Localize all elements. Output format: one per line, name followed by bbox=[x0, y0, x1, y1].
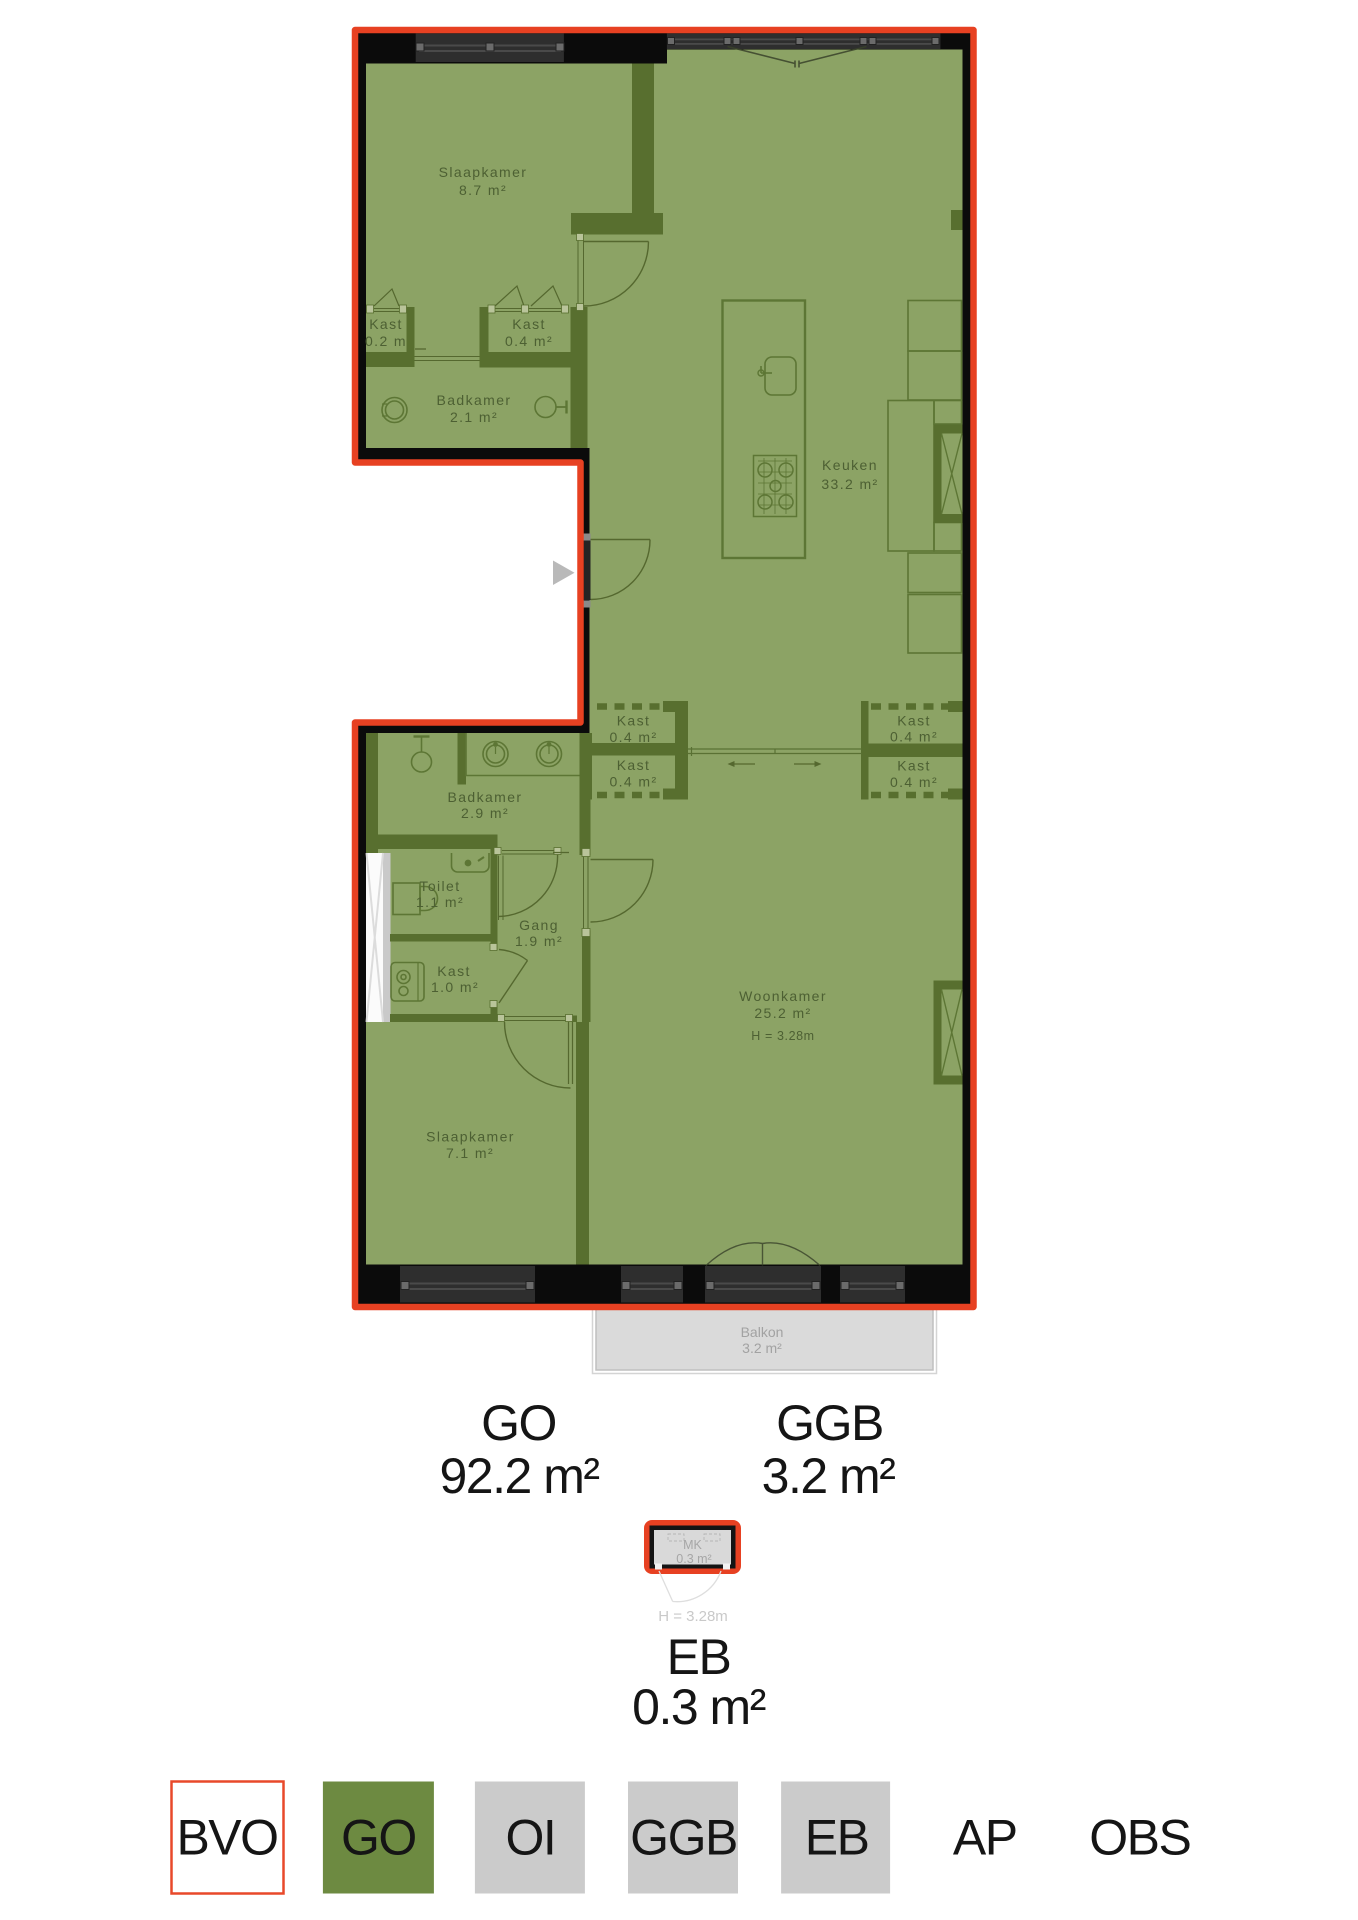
svg-text:H = 3.28m: H = 3.28m bbox=[658, 1608, 728, 1625]
svg-text:7.1 m²: 7.1 m² bbox=[446, 1145, 494, 1161]
svg-text:OI: OI bbox=[506, 1810, 556, 1866]
svg-text:Badkamer: Badkamer bbox=[436, 392, 511, 408]
svg-text:Woonkamer: Woonkamer bbox=[739, 988, 827, 1004]
svg-text:25.2 m²: 25.2 m² bbox=[754, 1005, 811, 1021]
svg-text:8.7 m²: 8.7 m² bbox=[459, 182, 507, 198]
svg-text:Kast: Kast bbox=[617, 713, 651, 729]
svg-text:Slaapkamer: Slaapkamer bbox=[439, 164, 528, 180]
svg-text:1.9 m²: 1.9 m² bbox=[515, 933, 563, 949]
svg-text:Gang: Gang bbox=[519, 917, 559, 933]
svg-text:MK: MK bbox=[683, 1538, 702, 1552]
svg-text:AP: AP bbox=[953, 1810, 1017, 1866]
svg-text:Kast: Kast bbox=[617, 757, 651, 773]
svg-text:0.4 m²: 0.4 m² bbox=[890, 729, 938, 745]
svg-text:EB: EB bbox=[805, 1810, 869, 1866]
svg-text:OBS: OBS bbox=[1089, 1810, 1190, 1866]
svg-text:GGB: GGB bbox=[630, 1810, 737, 1866]
svg-text:3.2 m²: 3.2 m² bbox=[742, 1340, 782, 1356]
svg-text:BVO: BVO bbox=[176, 1810, 277, 1866]
svg-text:GO: GO bbox=[481, 1395, 556, 1451]
svg-text:0.4 m²: 0.4 m² bbox=[890, 774, 938, 790]
svg-text:0.4 m²: 0.4 m² bbox=[609, 729, 657, 745]
svg-text:Kast: Kast bbox=[437, 963, 471, 979]
svg-text:Toilet: Toilet bbox=[419, 878, 460, 894]
svg-text:Badkamer: Badkamer bbox=[447, 789, 522, 805]
svg-text:0.2 m: 0.2 m bbox=[365, 333, 407, 349]
svg-text:GO: GO bbox=[341, 1810, 416, 1866]
svg-text:2.9 m²: 2.9 m² bbox=[461, 805, 509, 821]
svg-text:1.1 m²: 1.1 m² bbox=[416, 894, 464, 910]
svg-text:Balkon: Balkon bbox=[741, 1324, 784, 1340]
svg-text:Keuken: Keuken bbox=[822, 457, 878, 473]
svg-text:0.3 m²: 0.3 m² bbox=[632, 1679, 766, 1735]
svg-text:GGB: GGB bbox=[776, 1395, 883, 1451]
svg-text:92.2 m²: 92.2 m² bbox=[439, 1448, 599, 1504]
svg-text:33.2 m²: 33.2 m² bbox=[821, 476, 878, 492]
svg-text:3.2 m²: 3.2 m² bbox=[762, 1448, 896, 1504]
svg-text:Kast: Kast bbox=[369, 316, 403, 332]
svg-text:0.3 m²: 0.3 m² bbox=[676, 1552, 711, 1566]
svg-text:H = 3.28m: H = 3.28m bbox=[751, 1029, 814, 1043]
svg-text:EB: EB bbox=[667, 1629, 731, 1685]
svg-text:0.4 m²: 0.4 m² bbox=[609, 774, 657, 790]
svg-text:Kast: Kast bbox=[512, 316, 546, 332]
svg-text:2.1 m²: 2.1 m² bbox=[450, 409, 498, 425]
svg-text:1.0 m²: 1.0 m² bbox=[431, 979, 479, 995]
svg-text:0.4 m²: 0.4 m² bbox=[505, 333, 553, 349]
svg-text:Kast: Kast bbox=[897, 758, 931, 774]
svg-text:Kast: Kast bbox=[897, 713, 931, 729]
svg-text:Slaapkamer: Slaapkamer bbox=[426, 1129, 515, 1145]
